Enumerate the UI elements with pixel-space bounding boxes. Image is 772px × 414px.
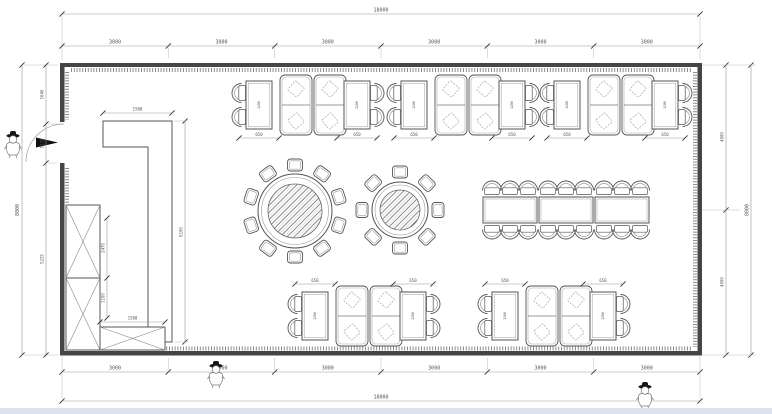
- booth-group-top-1: [232, 75, 384, 135]
- dim-label: 4000: [720, 277, 725, 287]
- dim-label: 3000: [322, 40, 334, 46]
- lazy-susan: [380, 190, 420, 230]
- dim-label: 3000: [215, 40, 227, 46]
- person-figure-bottom-right: [637, 382, 654, 409]
- booth-group-top-3: [540, 75, 692, 135]
- floor-plan-canvas: 1200 650: [0, 0, 772, 414]
- dim-label: 3000: [428, 366, 440, 372]
- dim-label: 8000: [15, 204, 21, 216]
- banquet-table: [483, 181, 650, 239]
- dim-label: 6100: [179, 227, 184, 237]
- entrance-door: [26, 124, 64, 162]
- dim-label: 3000: [641, 366, 653, 372]
- dim-label: 3000: [641, 40, 653, 46]
- round-table-large: [243, 159, 347, 263]
- dim-label: 1500: [133, 107, 143, 112]
- booth-group-top-2: [387, 75, 539, 135]
- booth-group-bottom-1: [288, 286, 440, 346]
- dim-label: 2470: [101, 243, 106, 253]
- dim-label: 3000: [534, 40, 546, 46]
- dim-label: 3000: [534, 366, 546, 372]
- dim-label: 8000: [745, 204, 751, 216]
- dim-label: 1640: [40, 89, 45, 99]
- dim-label: 4000: [720, 132, 725, 142]
- service-counter: 1500 6100: [100, 107, 188, 345]
- dim-label: 18000: [373, 8, 388, 14]
- bottom-segment-dimensions: 3000 3000 3000 3000 3000 3000: [59, 358, 702, 375]
- dim-label: 1135: [40, 138, 45, 148]
- right-dimensions: 4000 4000 8000: [702, 62, 756, 357]
- lazy-susan: [268, 184, 322, 238]
- top-segment-dimensions: 3000 3000 3000 3000 3000 3000: [59, 40, 702, 59]
- dim-label: 1100: [101, 293, 106, 303]
- dim-label: 3000: [428, 40, 440, 46]
- bottom-edge-strip: [0, 408, 772, 414]
- dim-label: 3000: [322, 366, 334, 372]
- booth-group-bottom-2: [478, 286, 630, 346]
- round-table-small: [356, 166, 444, 254]
- dim-label: 3000: [109, 40, 121, 46]
- person-figure-entrance: [5, 131, 22, 158]
- left-dimensions: 8000 1640 1135 5225: [15, 62, 58, 357]
- person-figure-bottom-center: [208, 361, 225, 388]
- dim-label: 18000: [373, 395, 388, 401]
- dim-label: 5225: [40, 254, 45, 264]
- dim-label: 1500: [128, 316, 138, 321]
- dim-label: 3000: [109, 366, 121, 372]
